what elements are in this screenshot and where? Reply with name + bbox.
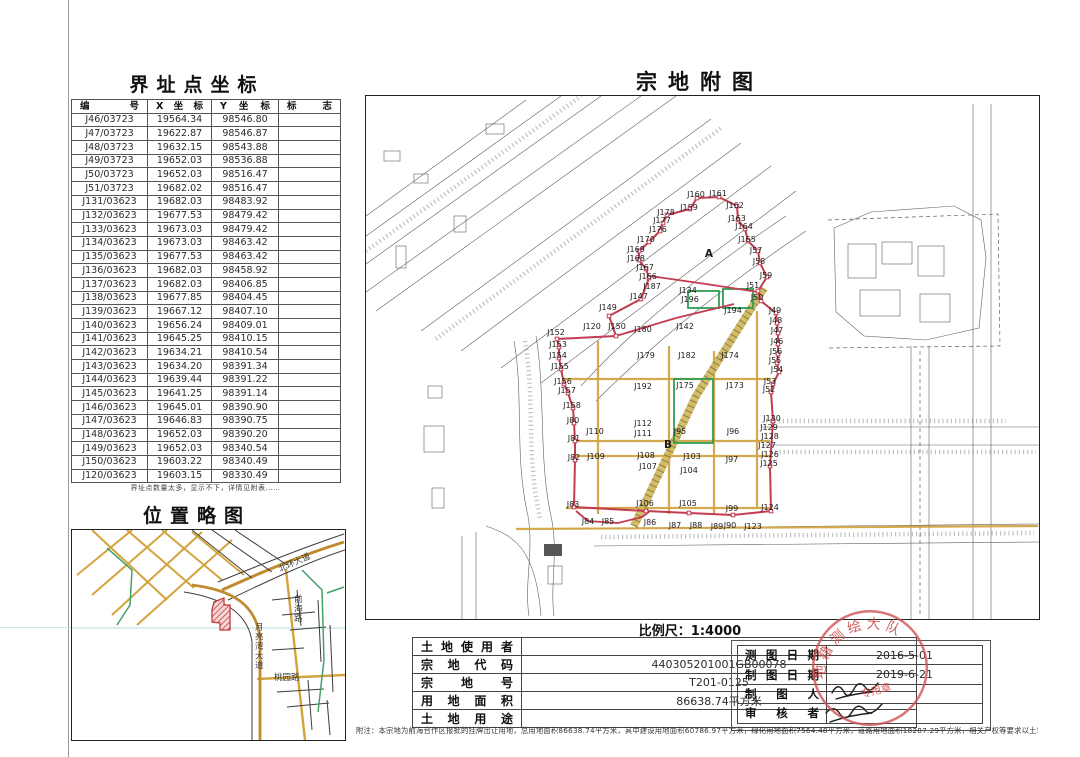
svg-text:J49: J49 <box>768 306 782 315</box>
point-value: 98516.47 <box>212 182 279 196</box>
coord-row: J49/0372319652.0398536.88 <box>72 154 341 168</box>
point-value: 98390.90 <box>212 401 279 415</box>
svg-text:J87: J87 <box>668 521 682 530</box>
svg-text:J86: J86 <box>643 518 657 527</box>
point-value: 98479.42 <box>212 209 279 223</box>
svg-text:J192: J192 <box>633 382 652 391</box>
point-value <box>279 195 341 209</box>
kv-row: 制图人 <box>738 684 983 703</box>
point-id: J50/03723 <box>72 168 148 182</box>
svg-text:J84: J84 <box>581 517 595 526</box>
svg-text:J129: J129 <box>759 423 778 432</box>
coord-row: J141/0362319645.2598410.15 <box>72 332 341 346</box>
coord-row: J120/0362319603.1598330.49 <box>72 469 341 483</box>
point-value: 98458.92 <box>212 264 279 278</box>
svg-text:J51: J51 <box>746 281 760 290</box>
point-value <box>279 373 341 387</box>
point-value <box>279 141 341 155</box>
point-id: J47/03723 <box>72 127 148 141</box>
svg-text:J155: J155 <box>550 362 569 371</box>
svg-text:J154: J154 <box>548 351 567 360</box>
point-value: 98391.34 <box>212 360 279 374</box>
svg-text:J46: J46 <box>770 337 784 346</box>
point-value: 19652.03 <box>148 442 212 456</box>
svg-text:J55: J55 <box>768 356 782 365</box>
point-id: J132/03623 <box>72 209 148 223</box>
coord-row: J149/0362319652.0398340.54 <box>72 442 341 456</box>
point-value: 19652.03 <box>148 428 212 442</box>
point-id: J142/03623 <box>72 346 148 360</box>
svg-text:J182: J182 <box>677 351 696 360</box>
coord-row: J144/0362319639.4498391.22 <box>72 373 341 387</box>
point-value: 98463.42 <box>212 250 279 264</box>
svg-text:J81: J81 <box>567 434 581 443</box>
point-value: 98407.10 <box>212 305 279 319</box>
svg-text:J123: J123 <box>743 522 762 531</box>
svg-text:J97: J97 <box>725 455 739 464</box>
coord-row: J50/0372319652.0398516.47 <box>72 168 341 182</box>
svg-text:J169: J169 <box>626 245 645 254</box>
coord-row: J48/0372319632.1598543.88 <box>72 141 341 155</box>
svg-text:J57: J57 <box>749 246 763 255</box>
point-id: J134/03623 <box>72 236 148 250</box>
point-value: 98483.92 <box>212 195 279 209</box>
coords-title: 界址点坐标 <box>88 70 306 97</box>
point-value: 19603.15 <box>148 469 212 483</box>
coord-row: J138/0362319677.8598404.45 <box>72 291 341 305</box>
point-value: 19682.02 <box>148 182 212 196</box>
svg-text:J156: J156 <box>553 377 572 386</box>
document-page: 界址点坐标 编号 X坐标 Y坐标 标志 J46/0372319564.34985… <box>0 0 1080 757</box>
point-value <box>279 332 341 346</box>
point-value <box>279 469 341 483</box>
point-id: J145/03623 <box>72 387 148 401</box>
point-value <box>279 127 341 141</box>
svg-text:J180: J180 <box>633 325 652 334</box>
svg-text:北环大道: 北环大道 <box>277 551 313 575</box>
point-value <box>279 319 341 333</box>
point-value: 19603.22 <box>148 455 212 469</box>
point-value: 98543.88 <box>212 141 279 155</box>
survey-info-body: 测图日期2016-5-01制图日期2019-6-21制图人审核者 <box>738 646 983 724</box>
kv-row: 审核者 <box>738 704 983 723</box>
svg-text:J176: J176 <box>648 225 667 234</box>
coord-row: J47/0372319622.8798546.87 <box>72 127 341 141</box>
svg-text:J130: J130 <box>762 414 781 423</box>
svg-text:J106: J106 <box>635 499 654 508</box>
point-id: J131/03623 <box>72 195 148 209</box>
svg-text:J82: J82 <box>567 453 581 462</box>
svg-text:J170: J170 <box>636 235 655 244</box>
remarks-note: 附注：本宗地为前海合作区报批的挂牌出让用地，总用地面积86638.74平方米，其… <box>356 726 1038 736</box>
point-value <box>279 442 341 456</box>
svg-text:J150: J150 <box>607 322 626 331</box>
point-value <box>279 401 341 415</box>
svg-text:J159: J159 <box>679 203 698 212</box>
point-id: J140/03623 <box>72 319 148 333</box>
point-value: 98410.54 <box>212 346 279 360</box>
svg-text:J160: J160 <box>686 190 705 199</box>
point-id: J141/03623 <box>72 332 148 346</box>
svg-text:J128: J128 <box>760 432 779 441</box>
point-value: 19673.03 <box>148 223 212 237</box>
survey-info-table: 测图日期2016-5-01制图日期2019-6-21制图人审核者 <box>737 645 983 724</box>
page-edge-line <box>68 0 69 757</box>
svg-text:J125: J125 <box>759 459 778 468</box>
coord-row: J136/0362319682.0398458.92 <box>72 264 341 278</box>
svg-text:J179: J179 <box>636 351 655 360</box>
point-value: 19564.34 <box>148 113 212 127</box>
svg-text:前海路: 前海路 <box>294 594 303 624</box>
location-title: 位置略图 <box>88 501 306 528</box>
point-value: 19645.25 <box>148 332 212 346</box>
svg-text:J107: J107 <box>638 462 657 471</box>
point-id: J146/03623 <box>72 401 148 415</box>
point-value: 19682.03 <box>148 195 212 209</box>
point-id: J144/03623 <box>72 373 148 387</box>
kv-label: 制图日期 <box>738 665 827 684</box>
coord-row: J135/0362319677.5398463.42 <box>72 250 341 264</box>
svg-text:J162: J162 <box>725 201 744 210</box>
point-value <box>279 346 341 360</box>
point-value: 98340.54 <box>212 442 279 456</box>
coord-row: J133/0362319673.0398479.42 <box>72 223 341 237</box>
svg-text:J149: J149 <box>598 303 617 312</box>
svg-text:J89: J89 <box>710 522 724 531</box>
coord-row: J134/0362319673.0398463.42 <box>72 236 341 250</box>
point-value: 19677.53 <box>148 250 212 264</box>
kv-label: 宗地代码 <box>413 656 522 674</box>
svg-text:J126: J126 <box>760 450 779 459</box>
svg-text:J175: J175 <box>675 381 694 390</box>
point-value: 19667.12 <box>148 305 212 319</box>
svg-text:J177: J177 <box>652 216 671 225</box>
svg-text:J90: J90 <box>723 521 737 530</box>
svg-text:J124: J124 <box>760 503 779 512</box>
point-value: 19682.03 <box>148 264 212 278</box>
point-value: 19652.03 <box>148 168 212 182</box>
svg-text:J80: J80 <box>566 416 580 425</box>
coord-row: J142/0362319634.2198410.54 <box>72 346 341 360</box>
point-value: 19652.03 <box>148 154 212 168</box>
point-value <box>279 428 341 442</box>
svg-text:J120: J120 <box>582 322 601 331</box>
col-header-id: 编号 <box>72 100 148 114</box>
svg-text:J173: J173 <box>725 381 744 390</box>
coords-note: 界址点数量太多，显示不下，详情见附表…… <box>71 483 340 493</box>
point-value <box>279 264 341 278</box>
kv-label: 制图人 <box>738 684 827 703</box>
coord-table-body: J46/0372319564.3498546.80J47/0372319622.… <box>72 113 341 483</box>
map-point-labels: J160J161J159J162J163J164J165J57J58J59J17… <box>546 189 783 531</box>
point-value: 19677.53 <box>148 209 212 223</box>
svg-text:J104: J104 <box>679 466 698 475</box>
svg-text:J142: J142 <box>675 322 694 331</box>
svg-text:J158: J158 <box>562 401 581 410</box>
point-value: 98330.49 <box>212 469 279 483</box>
kv-row: 制图日期2019-6-21 <box>738 665 983 684</box>
kv-row: 测图日期2016-5-01 <box>738 646 983 665</box>
svg-text:桃园路: 桃园路 <box>274 672 300 683</box>
svg-text:J95: J95 <box>673 427 687 436</box>
point-id: J135/03623 <box>72 250 148 264</box>
coord-row: J139/0362319667.1298407.10 <box>72 305 341 319</box>
point-id: J150/03623 <box>72 455 148 469</box>
svg-text:J134: J134 <box>678 286 697 295</box>
point-value: 98406.85 <box>212 277 279 291</box>
point-id: J136/03623 <box>72 264 148 278</box>
point-value <box>279 277 341 291</box>
point-value: 98340.49 <box>212 455 279 469</box>
coord-row: J143/0362319634.2098391.34 <box>72 360 341 374</box>
kv-value <box>827 704 983 723</box>
point-id: J120/03623 <box>72 469 148 483</box>
coord-row: J137/0362319682.0398406.85 <box>72 277 341 291</box>
coords-header-row: 编号 X坐标 Y坐标 标志 <box>72 100 341 114</box>
point-value <box>279 414 341 428</box>
point-value: 98409.01 <box>212 319 279 333</box>
svg-text:月亮湾大道: 月亮湾大道 <box>255 623 264 671</box>
coord-row: J145/0362319641.2598391.14 <box>72 387 341 401</box>
svg-text:J161: J161 <box>708 189 727 198</box>
kv-label: 土地用途 <box>413 710 522 728</box>
loc-parcel-highlight <box>212 598 230 630</box>
point-value <box>279 305 341 319</box>
svg-text:J112: J112 <box>633 419 652 428</box>
map-rail-band <box>634 288 764 526</box>
svg-text:J105: J105 <box>678 499 697 508</box>
coord-row: J46/0372319564.3498546.80 <box>72 113 341 127</box>
kv-value <box>827 684 983 703</box>
svg-text:J167: J167 <box>635 263 654 272</box>
point-value: 19645.01 <box>148 401 212 415</box>
svg-text:J165: J165 <box>737 235 756 244</box>
point-value <box>279 387 341 401</box>
point-value: 98410.15 <box>212 332 279 346</box>
point-id: J143/03623 <box>72 360 148 374</box>
coord-row: J51/0372319682.0298516.47 <box>72 182 341 196</box>
point-value: 19677.85 <box>148 291 212 305</box>
kv-label: 审核者 <box>738 704 827 723</box>
point-value: 98390.20 <box>212 428 279 442</box>
point-value: 19673.03 <box>148 236 212 250</box>
point-id: J51/03723 <box>72 182 148 196</box>
point-id: J46/03723 <box>72 113 148 127</box>
svg-text:J127: J127 <box>757 441 776 450</box>
point-id: J137/03623 <box>72 277 148 291</box>
svg-text:J164: J164 <box>734 222 753 231</box>
svg-text:J168: J168 <box>626 254 645 263</box>
point-value: 98479.42 <box>212 223 279 237</box>
boundary-coords-table: 编号 X坐标 Y坐标 标志 J46/0372319564.3498546.80J… <box>71 99 341 483</box>
coord-row: J148/0362319652.0398390.20 <box>72 428 341 442</box>
svg-text:J48: J48 <box>769 316 783 325</box>
svg-text:J196: J196 <box>680 295 699 304</box>
point-value: 19641.25 <box>148 387 212 401</box>
svg-text:J52: J52 <box>762 385 776 394</box>
scan-fold-line <box>0 627 74 628</box>
point-id: J149/03623 <box>72 442 148 456</box>
kv-label: 测图日期 <box>738 646 827 665</box>
svg-text:J58: J58 <box>752 257 766 266</box>
point-value: 98546.87 <box>212 127 279 141</box>
svg-text:J54: J54 <box>770 365 784 374</box>
point-value: 19622.87 <box>148 127 212 141</box>
svg-text:J111: J111 <box>633 429 652 438</box>
point-value <box>279 168 341 182</box>
svg-text:J88: J88 <box>689 521 703 530</box>
svg-text:J85: J85 <box>601 517 615 526</box>
point-value: 19639.44 <box>148 373 212 387</box>
svg-text:J108: J108 <box>636 451 655 460</box>
coord-row: J132/0362319677.5398479.42 <box>72 209 341 223</box>
svg-text:J103: J103 <box>682 452 701 461</box>
parcel-map-svg: J160J161J159J162J163J164J165J57J58J59J17… <box>366 96 1039 619</box>
coord-row: J131/0362319682.0398483.92 <box>72 195 341 209</box>
col-header-y: Y坐标 <box>212 100 279 114</box>
kv-label: 宗地号 <box>413 674 522 692</box>
point-value <box>279 455 341 469</box>
coord-row: J147/0362319646.8398390.75 <box>72 414 341 428</box>
point-id: J139/03623 <box>72 305 148 319</box>
point-id: J148/03623 <box>72 428 148 442</box>
kv-label: 土地使用者 <box>413 638 522 656</box>
coord-row: J150/0362319603.2298340.49 <box>72 455 341 469</box>
point-value: 19646.83 <box>148 414 212 428</box>
coord-row: J140/0362319656.2498409.01 <box>72 319 341 333</box>
point-value <box>279 250 341 264</box>
map-background-lines <box>366 96 1039 619</box>
svg-text:J83: J83 <box>566 500 580 509</box>
svg-text:J99: J99 <box>725 504 739 513</box>
kv-value: 2016-5-01 <box>827 646 983 665</box>
point-id: J138/03623 <box>72 291 148 305</box>
svg-text:J96: J96 <box>726 427 740 436</box>
kv-value: 2019-6-21 <box>827 665 983 684</box>
svg-text:J110: J110 <box>585 427 604 436</box>
point-id: J49/03723 <box>72 154 148 168</box>
point-value: 19634.21 <box>148 346 212 360</box>
svg-text:J157: J157 <box>557 386 576 395</box>
point-value: 98391.14 <box>212 387 279 401</box>
svg-text:J187: J187 <box>642 282 661 291</box>
col-header-mark: 标志 <box>279 100 341 114</box>
point-value: 98404.45 <box>212 291 279 305</box>
point-value <box>279 154 341 168</box>
point-value <box>279 291 341 305</box>
location-map: 北环大道月亮湾大道前海路桃园路 <box>71 529 346 741</box>
svg-text:J174: J174 <box>720 351 739 360</box>
svg-text:B: B <box>664 439 672 451</box>
coord-row: J146/0362319645.0198390.90 <box>72 401 341 415</box>
point-id: J147/03623 <box>72 414 148 428</box>
svg-text:J166: J166 <box>638 272 657 281</box>
svg-text:J47: J47 <box>770 326 784 335</box>
point-value: 98536.88 <box>212 154 279 168</box>
point-value: 98391.22 <box>212 373 279 387</box>
location-map-svg: 北环大道月亮湾大道前海路桃园路 <box>72 530 345 740</box>
point-value <box>279 209 341 223</box>
point-value: 19682.03 <box>148 277 212 291</box>
svg-text:J59: J59 <box>759 271 773 280</box>
point-value <box>279 360 341 374</box>
col-header-x: X坐标 <box>148 100 212 114</box>
kv-label: 用地面积 <box>413 692 522 710</box>
point-value <box>279 182 341 196</box>
point-value <box>279 236 341 250</box>
svg-text:J56: J56 <box>769 347 783 356</box>
point-value: 19634.20 <box>148 360 212 374</box>
point-value <box>279 113 341 127</box>
svg-text:A: A <box>705 248 714 260</box>
parcel-map-title: 宗地附图 <box>560 66 840 96</box>
point-value: 98463.42 <box>212 236 279 250</box>
point-value <box>279 223 341 237</box>
survey-info-box: 测图日期2016-5-01制图日期2019-6-21制图人审核者 <box>731 640 991 731</box>
point-value: 98516.47 <box>212 168 279 182</box>
point-value: 19632.15 <box>148 141 212 155</box>
point-id: J133/03623 <box>72 223 148 237</box>
point-value: 19656.24 <box>148 319 212 333</box>
point-value: 98546.80 <box>212 113 279 127</box>
svg-text:J50: J50 <box>750 293 764 302</box>
svg-text:J152: J152 <box>546 328 565 337</box>
svg-text:J147: J147 <box>629 292 648 301</box>
svg-text:J194: J194 <box>723 306 742 315</box>
point-value: 98390.75 <box>212 414 279 428</box>
parcel-map: J160J161J159J162J163J164J165J57J58J59J17… <box>365 95 1040 620</box>
svg-text:J153: J153 <box>548 340 567 349</box>
svg-text:J109: J109 <box>586 452 605 461</box>
point-id: J48/03723 <box>72 141 148 155</box>
